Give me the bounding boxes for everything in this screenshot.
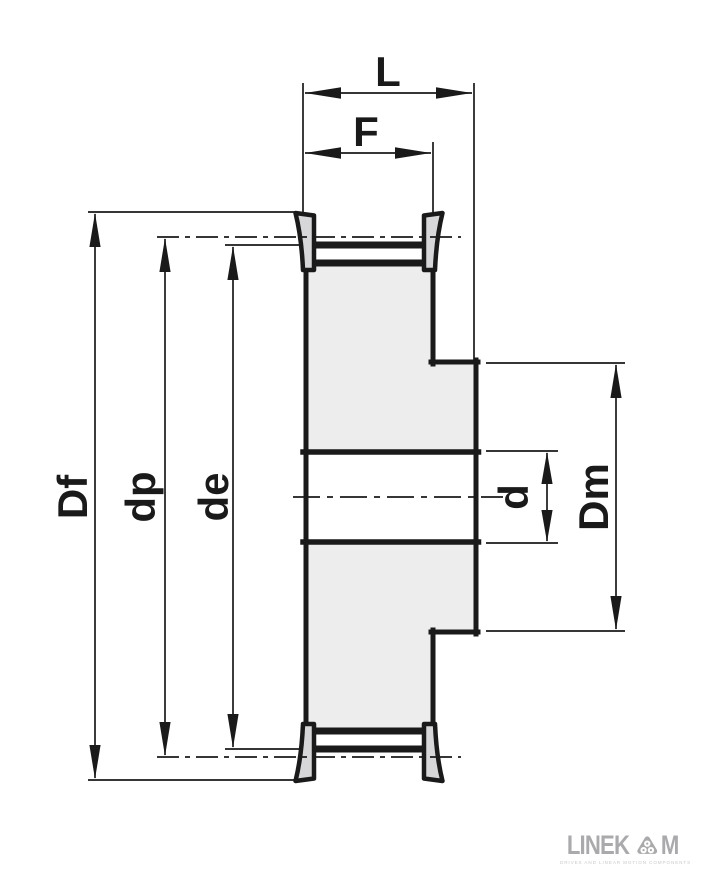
arrow-d-top <box>541 452 552 484</box>
logo-text-left: LINEK <box>567 832 629 859</box>
dim-label-bore-diameter: d <box>490 484 537 510</box>
dim-label-flange-diameter: Df <box>49 474 96 519</box>
dim-label-face-width: F <box>353 108 379 155</box>
logo-hole-right <box>650 849 652 851</box>
flange-bottom-right <box>424 724 443 781</box>
flange-bottom-left <box>296 724 315 781</box>
logo-wordmark: LINEK M <box>560 832 680 859</box>
arrow-F-left <box>305 147 341 159</box>
logo-text-right: M <box>660 832 678 859</box>
arrow-L-left <box>305 87 341 99</box>
arrow-L-right <box>436 87 472 99</box>
dim-label-hub-diameter: Dm <box>570 463 617 531</box>
technical-drawing-page: L F Df dp de d Dm LINEK M DRIVES AND LIN… <box>0 0 712 881</box>
brand-logo: LINEK M DRIVES AND LINEAR MOTION COMPONE… <box>560 832 680 865</box>
arrow-Dm-bottom <box>610 596 621 630</box>
arrow-Df-top <box>89 213 100 247</box>
arrow-Dm-top <box>610 364 621 398</box>
flange-top-left <box>296 213 315 270</box>
flange-top-right <box>424 213 443 270</box>
arrow-Df-bottom <box>89 745 100 779</box>
arrow-dp-bottom <box>159 722 170 756</box>
arrow-F-right <box>395 147 431 159</box>
arrow-dp-top <box>159 238 170 272</box>
dim-label-pitch-diameter: dp <box>117 471 164 522</box>
logo-pulley-icon <box>637 833 658 859</box>
logo-tagline: DRIVES AND LINEAR MOTION COMPONENTS <box>560 860 680 865</box>
logo-hole-top <box>646 842 648 844</box>
dim-label-outside-diameter: de <box>190 472 237 521</box>
pulley-section-drawing: L F Df dp de d Dm <box>0 0 712 881</box>
arrow-de-top <box>227 246 238 280</box>
arrow-d-bottom <box>541 510 552 542</box>
logo-hole-left <box>642 849 644 851</box>
dim-label-overall-length: L <box>375 48 401 95</box>
arrow-de-bottom <box>227 714 238 748</box>
